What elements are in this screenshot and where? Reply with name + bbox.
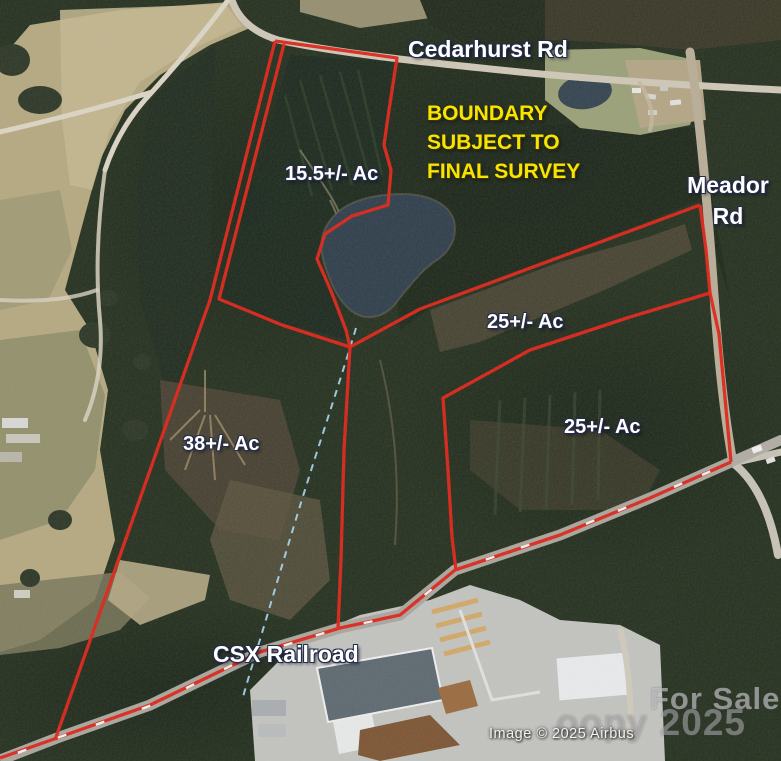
terrain-graphics xyxy=(0,0,781,761)
label-boundary-disclaimer: BOUNDARY SUBJECT TO FINAL SURVEY xyxy=(427,99,580,186)
disclaimer-line-1: BOUNDARY xyxy=(427,99,580,128)
imagery-attribution: Image © 2025 Airbus xyxy=(489,726,634,742)
disclaimer-line-3: FINAL SURVEY xyxy=(427,157,580,186)
satellite-map: Cedarhurst Rd BOUNDARY SUBJECT TO FINAL … xyxy=(0,0,781,761)
disclaimer-line-2: SUBJECT TO xyxy=(427,128,580,157)
